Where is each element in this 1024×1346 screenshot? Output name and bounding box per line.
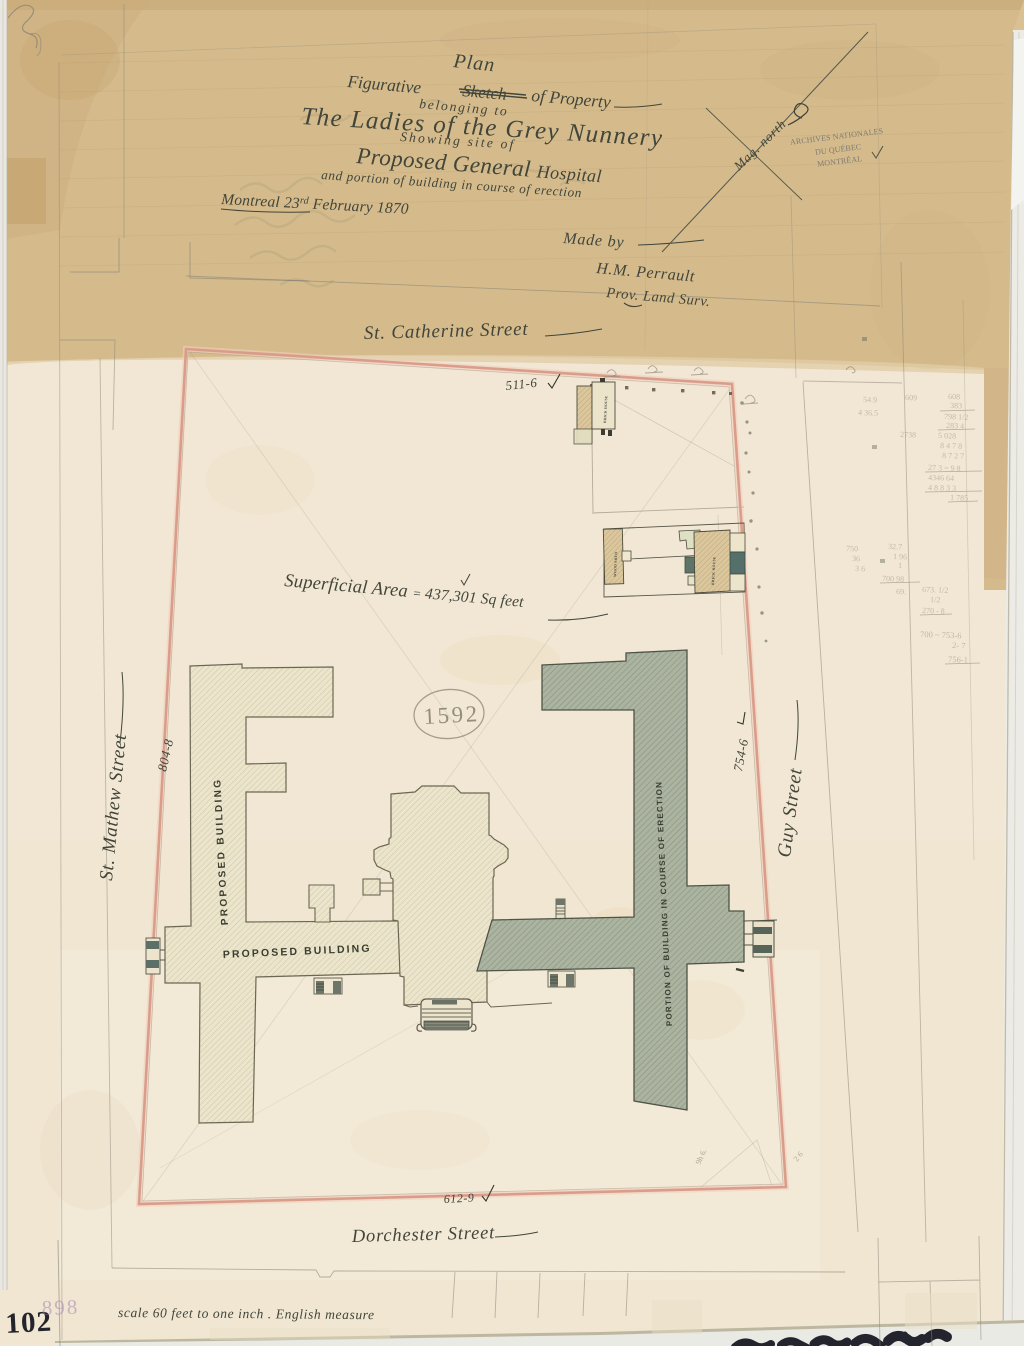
svg-text:8 4 7 8: 8 4 7 8 [940, 441, 962, 451]
svg-text:32.7: 32.7 [888, 542, 902, 551]
svg-text:383: 383 [950, 401, 962, 410]
svg-text:612-9: 612-9 [443, 1190, 474, 1206]
svg-text:700 ~ 753-6: 700 ~ 753-6 [920, 629, 962, 640]
svg-text:54.9: 54.9 [863, 395, 877, 404]
svg-text:8 7 2 7: 8 7 2 7 [942, 451, 964, 461]
svg-text:3 6: 3 6 [855, 564, 865, 573]
svg-text:673. 1/2: 673. 1/2 [922, 585, 949, 595]
svg-text:1 96: 1 96 [893, 552, 907, 561]
svg-text:4 36.5: 4 36.5 [858, 408, 878, 418]
svg-text:Dorchester Street: Dorchester Street [351, 1223, 496, 1247]
svg-text:1592: 1592 [423, 701, 480, 729]
svg-text:2738: 2738 [900, 430, 916, 440]
svg-text:5 028: 5 028 [938, 431, 956, 441]
svg-text:Plan: Plan [451, 50, 496, 76]
svg-text:898: 898 [41, 1295, 79, 1320]
svg-text:69.: 69. [896, 587, 906, 596]
svg-text:750: 750 [846, 544, 858, 553]
svg-text:St. Catherine Street: St. Catherine Street [364, 319, 529, 344]
svg-text:36: 36 [852, 554, 860, 563]
svg-text:1/2: 1/2 [930, 595, 941, 604]
svg-text:609: 609 [905, 393, 917, 402]
svg-text:scale 60 feet to one inch . En: scale 60 feet to one inch . English meas… [118, 1305, 375, 1322]
svg-text:2- 7: 2- 7 [952, 640, 966, 650]
svg-text:1: 1 [898, 561, 902, 570]
svg-text:4346 64: 4346 64 [928, 473, 954, 483]
